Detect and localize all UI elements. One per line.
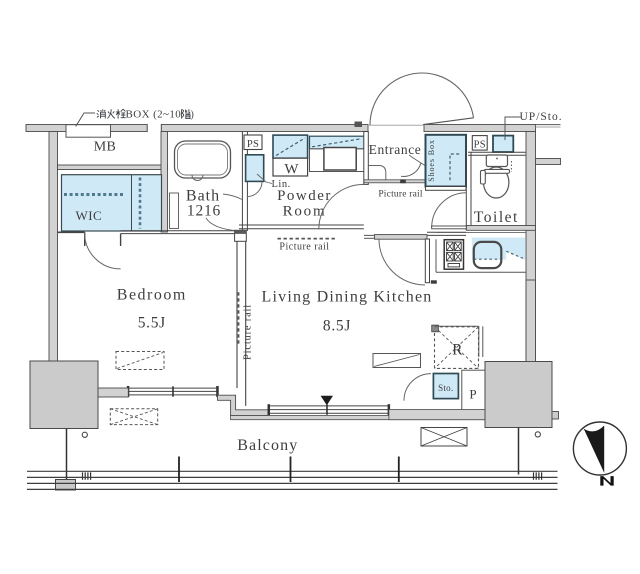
svg-text:BOX (2~10: BOX (2~10: [126, 109, 182, 121]
svg-text:PS: PS: [474, 139, 486, 150]
svg-text:R: R: [452, 342, 463, 359]
svg-text:Shoes Box: Shoes Box: [427, 139, 436, 182]
svg-text:WIC: WIC: [76, 208, 102, 223]
svg-text:Balcony: Balcony: [237, 437, 298, 454]
svg-text:P: P: [469, 387, 476, 402]
svg-text:): ): [191, 110, 194, 121]
svg-text:Room: Room: [283, 204, 327, 220]
svg-text:Living Dining Kitchen: Living Dining Kitchen: [262, 289, 433, 306]
svg-text:Bedroom: Bedroom: [117, 287, 187, 304]
svg-text:8.5J: 8.5J: [323, 318, 351, 335]
svg-text:Sto.: Sto.: [438, 383, 453, 393]
svg-text:UP/Sto.: UP/Sto.: [520, 111, 563, 123]
svg-text:PS: PS: [247, 139, 259, 150]
svg-text:1216: 1216: [187, 203, 221, 220]
svg-text:Entrance: Entrance: [369, 142, 422, 157]
svg-text:MB: MB: [94, 140, 116, 155]
svg-text:Picture rail: Picture rail: [243, 304, 254, 360]
svg-text:Powder: Powder: [277, 188, 332, 204]
svg-text:Picture rail: Picture rail: [378, 189, 423, 199]
svg-text:Picture rail: Picture rail: [279, 241, 329, 252]
svg-text:W: W: [284, 161, 299, 177]
svg-text:Toilet: Toilet: [474, 209, 519, 226]
svg-text:5.5J: 5.5J: [138, 315, 166, 332]
